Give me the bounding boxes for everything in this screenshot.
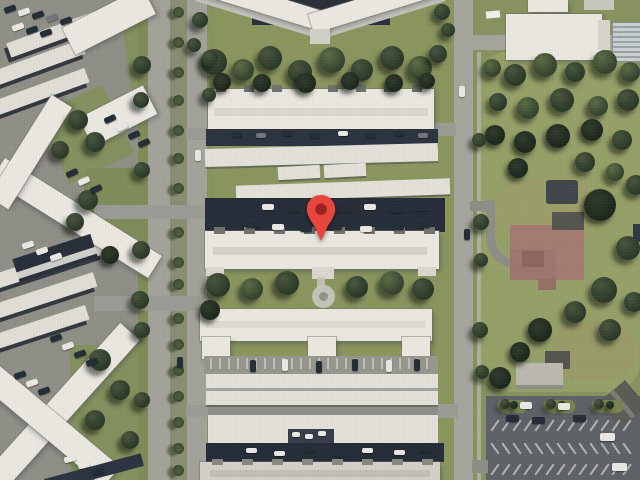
stall-lines — [372, 358, 374, 369]
parked-car — [600, 433, 615, 441]
tree — [504, 64, 526, 86]
red-bldg-court — [522, 251, 544, 267]
bldg-d-units — [302, 459, 313, 465]
tree — [232, 59, 254, 81]
tree — [594, 399, 604, 409]
tree — [296, 73, 316, 93]
tree — [133, 92, 149, 108]
parked-car — [532, 417, 545, 424]
parked-car — [274, 451, 285, 456]
parked-car — [520, 402, 532, 409]
bldg-tr-main — [506, 14, 602, 60]
parked-car — [352, 359, 358, 371]
parked-car — [338, 206, 350, 212]
tree — [533, 53, 557, 77]
canopy-short-b — [324, 163, 367, 178]
stall-lines — [381, 358, 383, 369]
tree — [200, 300, 220, 320]
tree — [385, 74, 403, 92]
bldg-d-shade — [210, 470, 430, 477]
parked-car — [334, 452, 345, 457]
tree — [485, 125, 505, 145]
tree — [508, 158, 528, 178]
tree — [593, 50, 617, 74]
tree — [575, 152, 595, 172]
tree — [51, 141, 69, 159]
parked-car — [304, 447, 315, 452]
tree — [550, 88, 574, 112]
greenhouse — [612, 22, 640, 62]
tree — [581, 119, 603, 141]
tree — [319, 47, 345, 73]
stall-lines — [336, 358, 338, 369]
tree — [419, 73, 435, 89]
palm-tree — [173, 313, 184, 324]
tree — [101, 246, 119, 264]
palm-tree — [173, 227, 184, 238]
palm-tree — [173, 417, 184, 428]
tree — [253, 74, 271, 92]
palm-tree — [173, 465, 184, 476]
stall-lines — [264, 358, 266, 369]
bldg-b-stub-r — [418, 267, 436, 276]
tree — [134, 162, 150, 178]
bldg-a-shade — [214, 108, 428, 116]
palm-tree — [173, 95, 184, 106]
tree — [66, 213, 84, 231]
bldg-d-units — [332, 459, 343, 465]
stall-lines — [408, 358, 410, 369]
stall-lines — [327, 358, 329, 369]
tree — [121, 431, 139, 449]
bldg-d-units — [422, 459, 433, 465]
bldg-c-stub — [308, 337, 336, 356]
tree — [434, 4, 450, 20]
red-bldg-nw — [510, 225, 558, 251]
tree — [489, 93, 507, 111]
parked-car — [414, 359, 420, 371]
tree — [606, 163, 624, 181]
tree — [616, 236, 640, 260]
tree — [68, 110, 88, 130]
tree — [546, 399, 556, 409]
stall-lines — [246, 358, 248, 369]
tree — [565, 62, 585, 82]
tree — [617, 89, 639, 111]
tree — [564, 301, 586, 323]
parked-car — [246, 448, 257, 453]
tree — [412, 278, 434, 300]
tree — [187, 38, 201, 52]
parked-car — [288, 206, 300, 212]
palm-tree — [173, 257, 184, 268]
tree — [483, 59, 501, 77]
tree — [473, 214, 489, 230]
tree — [258, 46, 282, 70]
parked-car — [177, 357, 183, 368]
tree — [132, 241, 150, 259]
parked-car — [414, 205, 426, 211]
stall-lines — [210, 358, 212, 369]
parked-car — [262, 204, 274, 210]
parked-car — [418, 222, 430, 228]
parked-car — [459, 86, 465, 97]
palm-tree — [173, 37, 184, 48]
tree — [528, 318, 552, 342]
tree — [202, 50, 218, 66]
parked-car — [558, 403, 570, 410]
tree — [192, 12, 208, 28]
bldg-d-units — [272, 459, 283, 465]
parked-car — [250, 360, 256, 372]
tree — [78, 190, 98, 210]
tree — [606, 401, 614, 409]
tree — [429, 45, 447, 63]
tree — [346, 276, 368, 298]
parked-car — [316, 361, 322, 373]
bldg-b-shade — [213, 247, 427, 255]
parked-car — [318, 431, 326, 436]
tree — [241, 278, 263, 300]
tree — [206, 273, 230, 297]
satellite-map-viewport[interactable] — [0, 0, 640, 480]
bldg-a-units — [356, 85, 366, 92]
tree — [474, 253, 488, 267]
stall-lines — [300, 358, 302, 369]
tree — [341, 72, 359, 90]
parked-car — [390, 207, 402, 213]
tree — [612, 130, 632, 150]
tree — [472, 133, 486, 147]
parked-car — [366, 133, 376, 138]
tree — [546, 124, 570, 148]
bldg-a-units — [272, 85, 282, 92]
parked-car — [464, 229, 470, 240]
tree — [131, 291, 149, 309]
map-marker[interactable] — [304, 194, 338, 242]
tree — [213, 73, 231, 91]
parked-car — [232, 132, 242, 137]
parked-car — [506, 415, 519, 422]
parked-car — [394, 450, 405, 455]
stall-lines — [273, 358, 275, 369]
stall-lines — [345, 358, 347, 369]
tree — [500, 399, 510, 409]
tree — [626, 175, 640, 195]
palm-tree — [173, 67, 184, 78]
bldg-d-units — [242, 459, 253, 465]
tree — [134, 392, 150, 408]
stall-lines — [399, 358, 401, 369]
tree — [275, 271, 299, 295]
palm-tree — [173, 183, 184, 194]
red-bldg-roofdark — [552, 212, 584, 232]
parked-car — [292, 432, 300, 437]
connector-left-2 — [94, 296, 208, 311]
parked-car — [420, 447, 431, 452]
tree — [475, 365, 489, 379]
parked-car — [256, 133, 266, 138]
v-vertex-stub — [310, 29, 330, 44]
marker-dot — [315, 203, 327, 215]
parked-car — [195, 150, 201, 161]
parked-car — [360, 226, 372, 232]
palm-tree — [173, 153, 184, 164]
bldg-c-shade — [206, 321, 426, 328]
tree — [202, 88, 216, 102]
stall-lines — [426, 358, 428, 369]
tree — [588, 96, 608, 116]
white-vehicle — [486, 10, 501, 18]
bldg-a-units — [244, 85, 254, 92]
tree — [472, 322, 488, 338]
parked-car — [612, 463, 627, 471]
bldg-tr-wing — [598, 20, 610, 50]
bldg-b-units — [244, 227, 255, 234]
tree — [510, 401, 518, 409]
parked-car — [573, 415, 586, 422]
tree — [489, 367, 511, 389]
palm-tree — [173, 443, 184, 454]
tree — [624, 292, 640, 312]
parked-car — [338, 131, 348, 136]
palm-tree — [173, 339, 184, 350]
tree — [85, 410, 105, 430]
lot-entrance — [472, 460, 488, 473]
parked-car — [272, 224, 284, 230]
tree — [110, 380, 130, 400]
bldg-a-units — [328, 85, 338, 92]
stall-lines — [219, 358, 221, 369]
bldg-d-units — [392, 459, 403, 465]
left-road-lane-w — [148, 0, 170, 480]
tree — [517, 97, 539, 119]
asphalt-pad — [546, 180, 578, 204]
palm-tree — [173, 279, 184, 290]
tree — [380, 271, 404, 295]
connector-left-1 — [94, 205, 208, 219]
tree — [591, 277, 617, 303]
aisle-bottom — [206, 406, 440, 415]
tree — [133, 56, 151, 74]
parked-car — [305, 434, 313, 439]
stall-lines — [309, 358, 311, 369]
parked-car — [246, 222, 258, 228]
stall-lines — [291, 358, 293, 369]
stall-lines — [228, 358, 230, 369]
tree — [620, 62, 640, 82]
marker-pin-icon — [307, 195, 335, 241]
bldg-d-units — [212, 459, 223, 465]
parked-car — [364, 204, 376, 210]
parked-car — [418, 133, 428, 138]
bldg-tr-back-2 — [584, 0, 614, 10]
tree — [599, 319, 621, 341]
bldg-tr-back-1 — [528, 0, 568, 12]
parked-car — [282, 131, 292, 136]
drive-stub-w — [470, 201, 488, 211]
parked-car — [282, 359, 288, 371]
canopy-short-a — [278, 165, 321, 180]
tree — [85, 132, 105, 152]
parked-car — [394, 131, 404, 136]
tree — [134, 322, 150, 338]
stub-right-bottom — [438, 404, 458, 418]
plaza-core — [319, 292, 328, 301]
canopy-c3-line — [206, 388, 438, 391]
red-bldg-e — [552, 230, 584, 280]
bldg-gray-small-edge — [516, 385, 563, 389]
parked-car — [386, 360, 392, 372]
bldg-b-units — [214, 227, 225, 234]
palm-tree — [173, 125, 184, 136]
tree — [510, 342, 530, 362]
parked-car — [310, 133, 320, 138]
stall-lines — [237, 358, 239, 369]
parked-car — [392, 224, 404, 230]
tree — [380, 46, 404, 70]
red-bldg-stub — [538, 278, 556, 290]
tree — [584, 189, 616, 221]
bldg-d-units — [362, 459, 373, 465]
tree — [441, 23, 455, 37]
parked-car — [362, 448, 373, 453]
stub-left-bottom — [186, 405, 208, 417]
stub-left-mid — [186, 128, 208, 140]
bldg-b-units — [424, 227, 435, 234]
stall-lines — [363, 358, 365, 369]
palm-tree — [173, 391, 184, 402]
tree — [514, 131, 536, 153]
palm-tree — [173, 7, 184, 18]
